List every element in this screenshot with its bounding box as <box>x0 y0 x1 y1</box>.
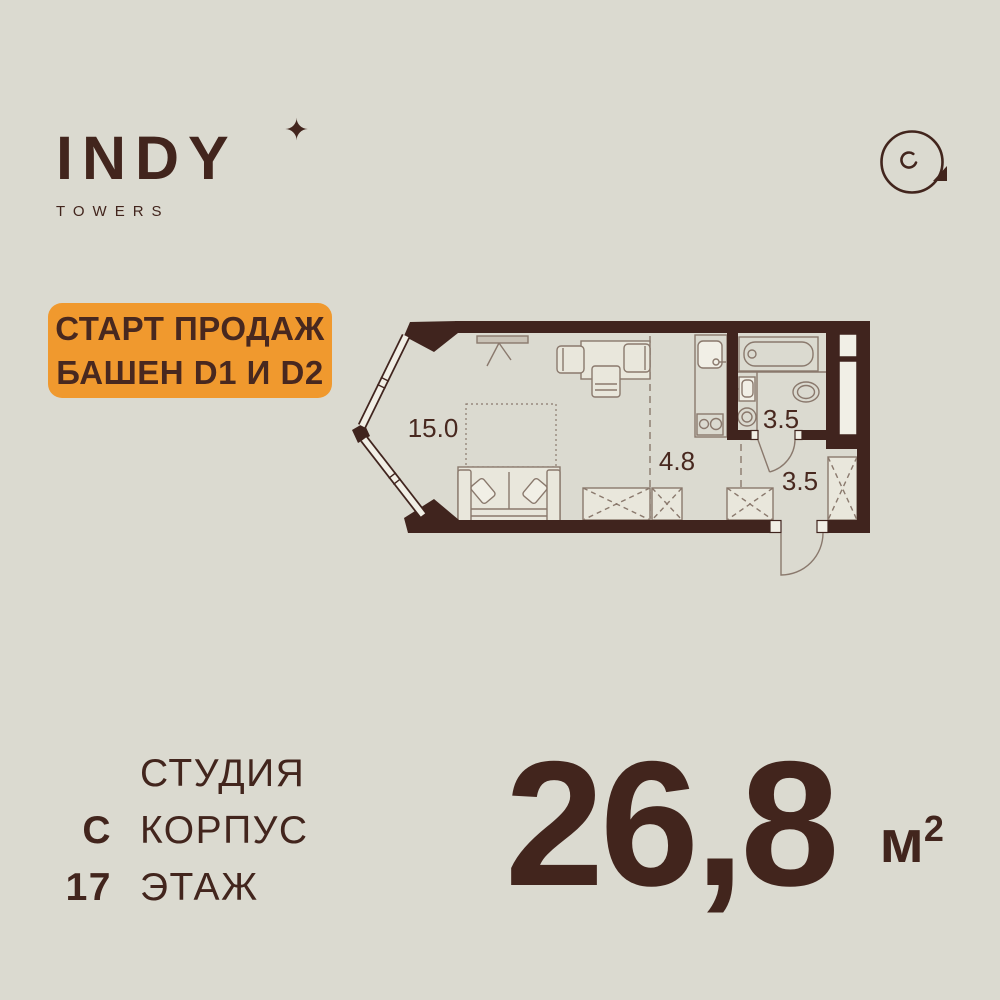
sofa <box>458 467 560 527</box>
total-area: 26,8 м2 <box>505 735 975 913</box>
apartment-details: СТУДИЯ С КОРПУС 17 ЭТАЖ <box>56 745 309 916</box>
detail-label-type: СТУДИЯ <box>140 745 309 802</box>
detail-value-floor: 17 <box>56 859 112 916</box>
bed-outline <box>466 404 556 467</box>
room-area-label: 3.5 <box>782 466 818 496</box>
room-area-label: 3.5 <box>763 404 799 434</box>
detail-label-building: КОРПУС <box>140 802 309 859</box>
total-area-value: 26,8 <box>505 735 835 913</box>
kitchen-counter <box>695 335 727 437</box>
vent-shafts <box>839 334 857 435</box>
entry-door <box>781 533 823 575</box>
detail-value-building: С <box>56 802 112 859</box>
table-and-chairs <box>557 341 650 397</box>
detail-value <box>56 745 112 802</box>
room-area-label: 15.0 <box>408 413 459 443</box>
unit-m: м <box>879 808 923 875</box>
total-area-unit: м2 <box>879 807 943 876</box>
washing-machine-icon <box>738 408 756 426</box>
tv-icon <box>477 336 528 366</box>
room-area-label: 4.8 <box>659 446 695 476</box>
unit-sup: 2 <box>924 808 944 849</box>
detail-label-floor: ЭТАЖ <box>140 859 309 916</box>
